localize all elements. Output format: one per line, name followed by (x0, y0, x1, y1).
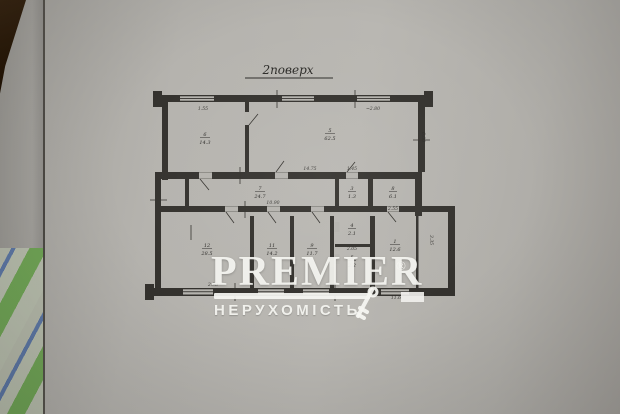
room-label: 724.7 (253, 186, 266, 200)
svg-text:14.3: 14.3 (199, 140, 210, 146)
svg-text:~2.80: ~2.80 (366, 106, 380, 112)
room-label: 562.5 (324, 128, 335, 142)
room-label: 614.3 (199, 132, 210, 146)
svg-text:10.90: 10.90 (266, 200, 279, 206)
svg-text:6: 6 (203, 132, 207, 138)
svg-text:1.45: 1.45 (347, 166, 357, 172)
svg-text:2.1: 2.1 (347, 231, 356, 237)
svg-text:14.75: 14.75 (303, 166, 316, 172)
svg-text:1: 1 (393, 239, 396, 245)
room-label: 31.3 (348, 186, 356, 200)
svg-text:6.1: 6.1 (389, 194, 397, 200)
svg-text:7: 7 (258, 186, 262, 192)
room-label: 42.1 (347, 223, 356, 237)
plan-title: 2поверх (261, 63, 313, 77)
svg-text:1.3: 1.3 (348, 194, 356, 200)
svg-text:62.5: 62.5 (324, 136, 335, 142)
paper-fold-edge (43, 0, 45, 414)
svg-text:1.55: 1.55 (198, 106, 208, 112)
svg-text:11.6: 11.6 (391, 295, 401, 301)
photo-of-floor-plan: 2поверх (0, 0, 620, 414)
watermark-brand: PREMIER (211, 251, 423, 293)
svg-text:3.35: 3.35 (428, 235, 434, 245)
svg-text:5: 5 (328, 128, 331, 134)
striped-drawing-sheet (0, 248, 45, 414)
svg-text:3: 3 (350, 186, 353, 192)
svg-text:6.00: 6.00 (420, 132, 426, 142)
registered-trademark-icon: ® (396, 258, 406, 274)
watermark-subtitle: НЕРУХОМІСТЬ (214, 302, 361, 319)
svg-text:4: 4 (349, 223, 353, 229)
room-label: 86.1 (389, 186, 397, 200)
watermark-underline-bar (214, 293, 370, 299)
svg-text:24.7: 24.7 (253, 194, 266, 200)
svg-text:2.55: 2.55 (387, 206, 398, 212)
svg-text:8: 8 (391, 186, 394, 192)
svg-text:12: 12 (204, 243, 210, 249)
